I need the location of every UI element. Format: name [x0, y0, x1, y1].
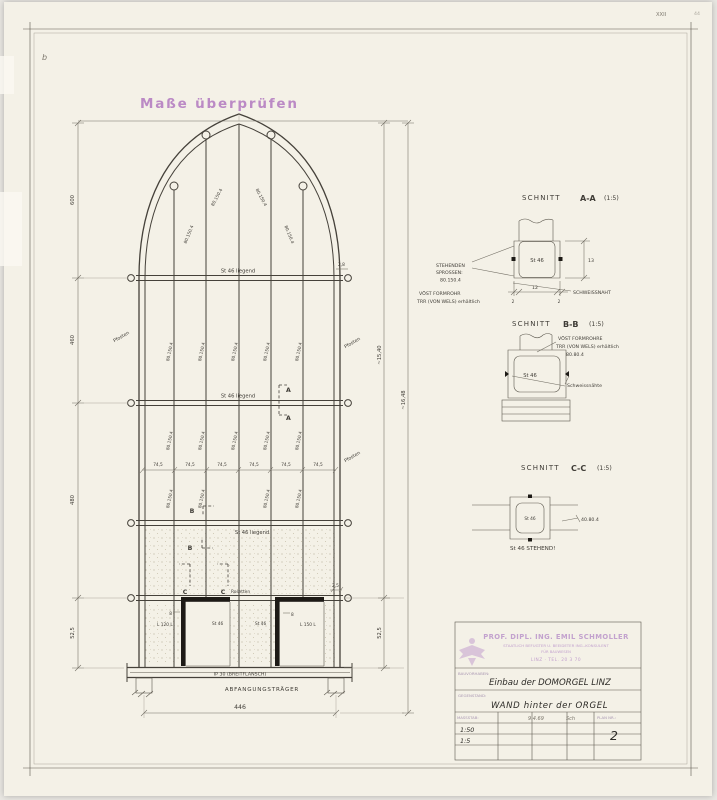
- note-sprossen: STEHENDEN: [436, 263, 465, 269]
- rail-label: St 46 liegend: [221, 269, 255, 275]
- marker-a: A: [286, 415, 291, 422]
- scale-field-label: MASSSTAB:: [457, 715, 479, 720]
- eagle-emblem: [459, 638, 485, 666]
- svg-text:74,5: 74,5: [153, 462, 163, 468]
- note-formrohre: VÖST FORMROHRE: [558, 335, 603, 342]
- firm-line: FÜR BAUWESEN: [541, 649, 571, 654]
- weld-label: SCHWEISSNAHT: [573, 290, 611, 296]
- section-c-name: C-C: [571, 464, 586, 473]
- signature: Sch: [566, 716, 575, 722]
- elevation-drawing: IP 30 (BREITFLANSCH) ABFANGUNGSTRÄGER St…: [70, 114, 414, 718]
- svg-text:74,5: 74,5: [217, 462, 227, 468]
- marker-b: B: [190, 508, 195, 515]
- dim-wall: 2: [558, 299, 561, 305]
- svg-text:80.150.4: 80.150.4: [283, 225, 296, 245]
- title-block: PROF. DIPL. ING. EMIL SCHMOLLER STAATLIC…: [455, 622, 641, 760]
- note-formrohre: TRR (VON WELS) erhältlich: [555, 344, 619, 350]
- door-label: L 120 L: [157, 622, 173, 628]
- rail-label: St 46 liegend: [235, 530, 269, 536]
- svg-text:74,5: 74,5: [185, 462, 195, 468]
- svg-text:460: 460: [70, 335, 76, 345]
- jamb-dim: 8: [291, 612, 294, 618]
- marker-a: A: [286, 387, 291, 394]
- drawing-sheet: XXII 44 b Maße überprüfen: [0, 0, 717, 800]
- section-b-name: B-B: [563, 320, 579, 329]
- section-c-detail: SCHNITT C-C (1:5) St 46 40.80.4 St 46 ST…: [472, 464, 612, 552]
- size-label: 40.80.4: [581, 517, 599, 523]
- section-c-caption: St 46 STEHEND!: [510, 546, 555, 552]
- rosetten-label: Rosetten: [231, 589, 250, 595]
- section-c-title-prefix: SCHNITT: [521, 464, 560, 472]
- svg-text:~16,48: ~16,48: [401, 390, 407, 409]
- svg-text:80.150.4: 80.150.4: [210, 187, 224, 207]
- svg-text:74,5: 74,5: [281, 462, 291, 468]
- project-title: Einbau der DOMORGEL LINZ: [489, 678, 612, 688]
- note-sprossen: 80.150.4: [440, 278, 461, 284]
- sheet-frame: [23, 22, 698, 776]
- svg-text:52,5: 52,5: [70, 627, 76, 639]
- firm-line: STAATLICH BEFUGTER U. BEEIDETER ING.-KON…: [503, 643, 609, 648]
- section-a-detail: SCHNITT A-A (1:5) St 46 13 12 2 2 STEHEN…: [416, 194, 619, 305]
- concrete-panel: [230, 603, 275, 665]
- technical-drawing: XXII 44 b Maße überprüfen: [0, 0, 717, 800]
- project-field-label: BAUVORHABEN:: [458, 671, 489, 676]
- scale-value: 1:50: [460, 726, 474, 734]
- pencil-scribble: b: [42, 53, 47, 62]
- section-a-name: A-A: [580, 194, 597, 203]
- door-label: L 150 L: [300, 622, 316, 628]
- svg-text:52,5: 52,5: [377, 627, 383, 639]
- header-dim: 2,5: [332, 583, 339, 589]
- tube-section: [508, 350, 566, 398]
- plan-number: 2: [610, 728, 618, 743]
- scale-value: 1:5: [460, 737, 470, 745]
- section-b-detail: SCHNITT B-B (1:5) St 46 VÖST FORMROHRE T…: [502, 320, 619, 421]
- marker-c: C: [183, 589, 188, 596]
- pfosten-label: Pfosten: [343, 450, 361, 464]
- firm-name: PROF. DIPL. ING. EMIL SCHMOLLER: [483, 633, 629, 641]
- tube-material: St 46: [530, 258, 544, 264]
- tube-material: St 46: [524, 516, 536, 522]
- concrete-panel: [143, 603, 181, 665]
- note-formrohr: VÖST FORMROHR: [419, 290, 461, 297]
- section-b-title-prefix: SCHNITT: [512, 320, 551, 328]
- section-a-title-prefix: SCHNITT: [522, 194, 561, 202]
- note-formrohre: 80.80.4: [566, 352, 584, 358]
- masonry: [502, 400, 570, 421]
- svg-text:74,5: 74,5: [249, 462, 259, 468]
- weld-label: Schweissnähte: [567, 383, 602, 389]
- beam-name: ABFANGUNGSTRÄGER: [225, 686, 299, 693]
- plan-field-label: PLAN NR.:: [597, 715, 616, 720]
- mullion-labels: 80.150.4 80.150.4 80.150.4 80.150.4 80.1…: [165, 187, 304, 508]
- rail-label: St 46 liegend: [221, 394, 255, 400]
- note-sprossen: SPROSSEN:: [436, 270, 463, 276]
- tube-material: St 46: [523, 373, 537, 379]
- svg-text:480: 480: [70, 495, 76, 505]
- firm-line: LINZ · TEL. 20 3 70: [531, 657, 581, 663]
- section-a-scale: (1:5): [604, 195, 619, 202]
- pfosten-label: Pfosten: [112, 330, 130, 344]
- rail-end-dim: 2,8: [338, 262, 345, 268]
- date-value: 9.4.69: [528, 716, 544, 722]
- corner-mark: 44: [694, 11, 700, 17]
- concrete-panel: [324, 603, 337, 665]
- beam-label: IP 30 (BREITFLANSCH): [214, 672, 267, 678]
- svg-text:80.150.4: 80.150.4: [183, 224, 196, 244]
- bottom-dim: 446: [234, 704, 246, 711]
- svg-text:74,5: 74,5: [313, 462, 323, 468]
- marker-b: B: [188, 545, 193, 552]
- dim-wall: 2: [512, 299, 515, 305]
- svg-text:80.150.4: 80.150.4: [254, 188, 268, 208]
- jamb-dim: 8: [169, 611, 172, 617]
- subject-field-label: GEGENSTAND:: [458, 693, 486, 698]
- corner-mark: XXII: [656, 12, 667, 18]
- section-c-scale: (1:5): [597, 465, 612, 472]
- subject-title: WAND hinter der ORGEL: [491, 701, 608, 711]
- door-label: St 46: [255, 621, 267, 627]
- door-label: St 46: [212, 621, 224, 627]
- svg-text:~15,40: ~15,40: [377, 345, 383, 364]
- marker-c: C: [221, 589, 226, 596]
- dim-height: 13: [588, 258, 594, 264]
- section-b-scale: (1:5): [589, 321, 604, 328]
- pfosten-label: Pfosten: [343, 336, 361, 350]
- check-stamp: Maße überprüfen: [140, 96, 299, 112]
- svg-text:600: 600: [70, 195, 76, 205]
- note-formrohr: TRR (VON WELS) erhältlich: [416, 299, 480, 305]
